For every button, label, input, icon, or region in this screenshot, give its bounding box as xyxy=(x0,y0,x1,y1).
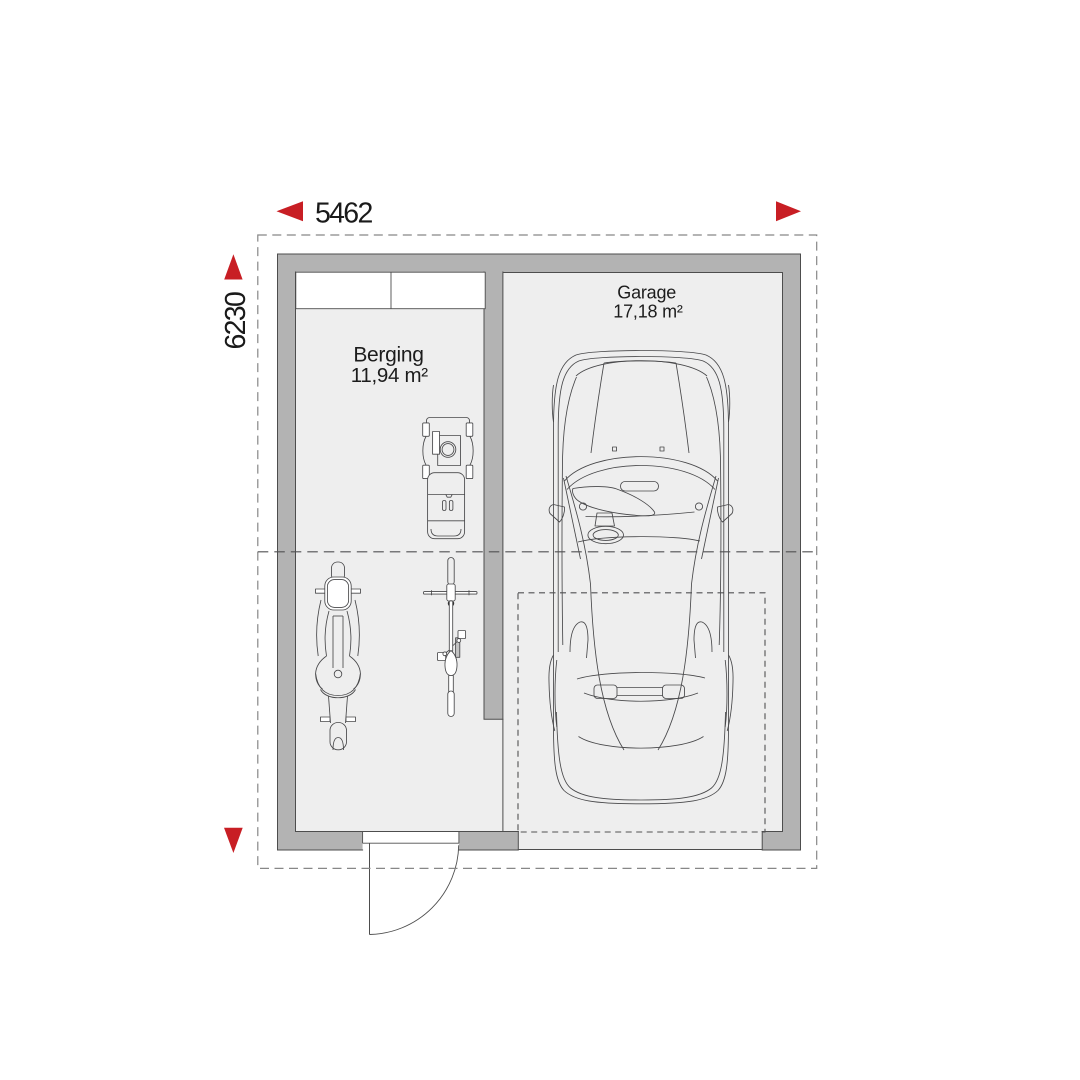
svg-text:5462: 5462 xyxy=(315,198,372,230)
svg-text:11,94 m²: 11,94 m² xyxy=(351,364,428,387)
svg-text:6230: 6230 xyxy=(220,292,252,349)
svg-text:Garage: Garage xyxy=(617,283,676,303)
svg-text:17,18 m²: 17,18 m² xyxy=(613,302,683,322)
